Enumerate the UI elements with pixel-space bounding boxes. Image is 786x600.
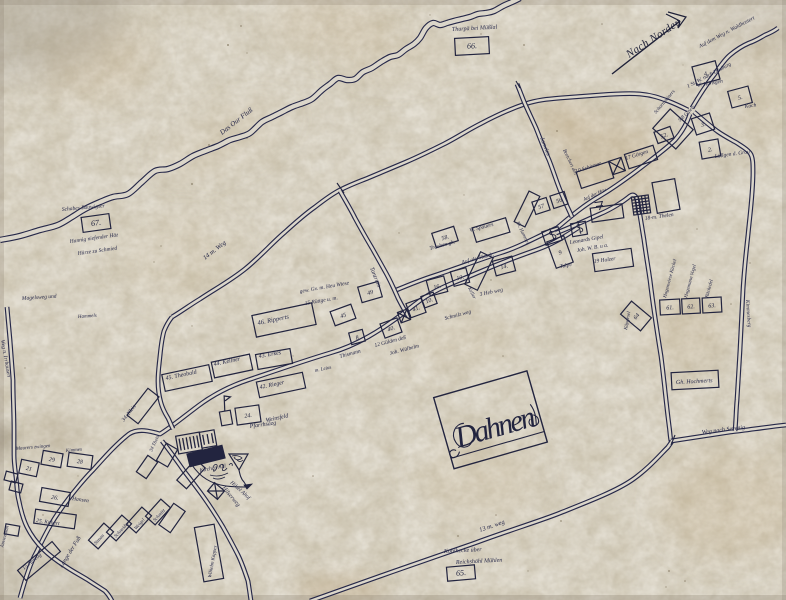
svg-text:67.: 67. (90, 218, 101, 228)
svg-text:62.: 62. (687, 304, 695, 310)
svg-text:63.: 63. (708, 303, 716, 309)
svg-text:61.: 61. (666, 305, 674, 311)
svg-text:65.: 65. (456, 568, 467, 578)
svg-text:24.: 24. (244, 412, 252, 420)
svg-text:29: 29 (48, 457, 55, 464)
svg-text:66.: 66. (467, 41, 477, 51)
svg-text:28: 28 (76, 459, 83, 466)
svg-text:26.: 26. (51, 495, 59, 502)
svg-text:21: 21 (25, 466, 32, 473)
